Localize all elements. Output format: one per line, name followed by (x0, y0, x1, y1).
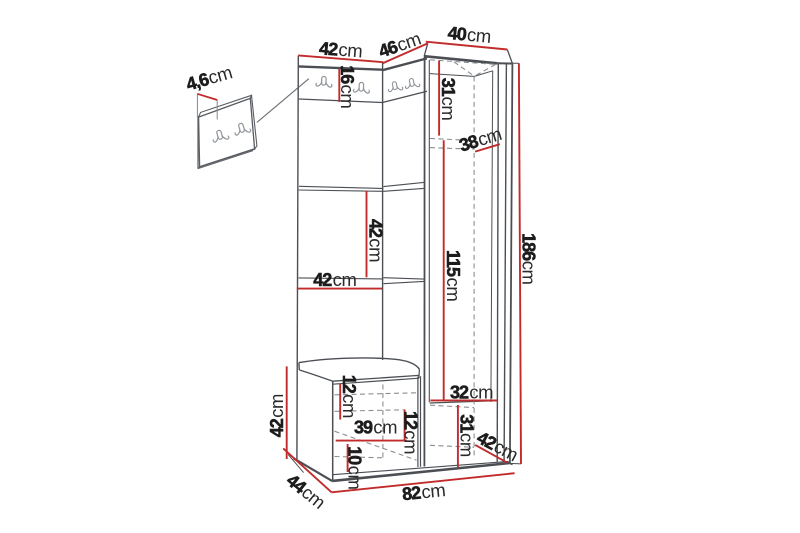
svg-text:cm: cm (443, 278, 464, 302)
svg-text:42: 42 (365, 219, 385, 238)
svg-text:82: 82 (401, 482, 422, 504)
svg-text:cm: cm (333, 269, 357, 290)
svg-text:16: 16 (337, 65, 357, 84)
svg-text:cm: cm (466, 24, 492, 47)
svg-text:31: 31 (438, 78, 458, 97)
svg-text:32: 32 (450, 382, 469, 402)
svg-text:cm: cm (438, 97, 459, 121)
svg-text:cm: cm (400, 430, 421, 454)
svg-text:cm: cm (339, 394, 360, 418)
svg-text:115: 115 (443, 250, 463, 277)
svg-text:12: 12 (339, 375, 359, 394)
svg-text:cm: cm (266, 394, 287, 418)
svg-text:cm: cm (373, 417, 397, 438)
svg-text:42: 42 (313, 270, 332, 290)
svg-text:186: 186 (518, 233, 538, 261)
svg-text:cm: cm (420, 479, 446, 502)
svg-text:31: 31 (456, 414, 476, 433)
svg-text:12: 12 (400, 411, 420, 430)
svg-text:cm: cm (337, 85, 358, 109)
svg-text:cm: cm (344, 466, 365, 490)
svg-text:39: 39 (354, 418, 373, 438)
svg-text:cm: cm (338, 39, 363, 62)
svg-text:42: 42 (318, 38, 338, 59)
svg-text:42: 42 (267, 418, 287, 437)
svg-text:cm: cm (469, 381, 493, 402)
svg-text:40: 40 (447, 23, 468, 45)
svg-text:cm: cm (518, 261, 539, 285)
svg-text:10: 10 (344, 446, 364, 465)
svg-text:cm: cm (365, 238, 386, 262)
